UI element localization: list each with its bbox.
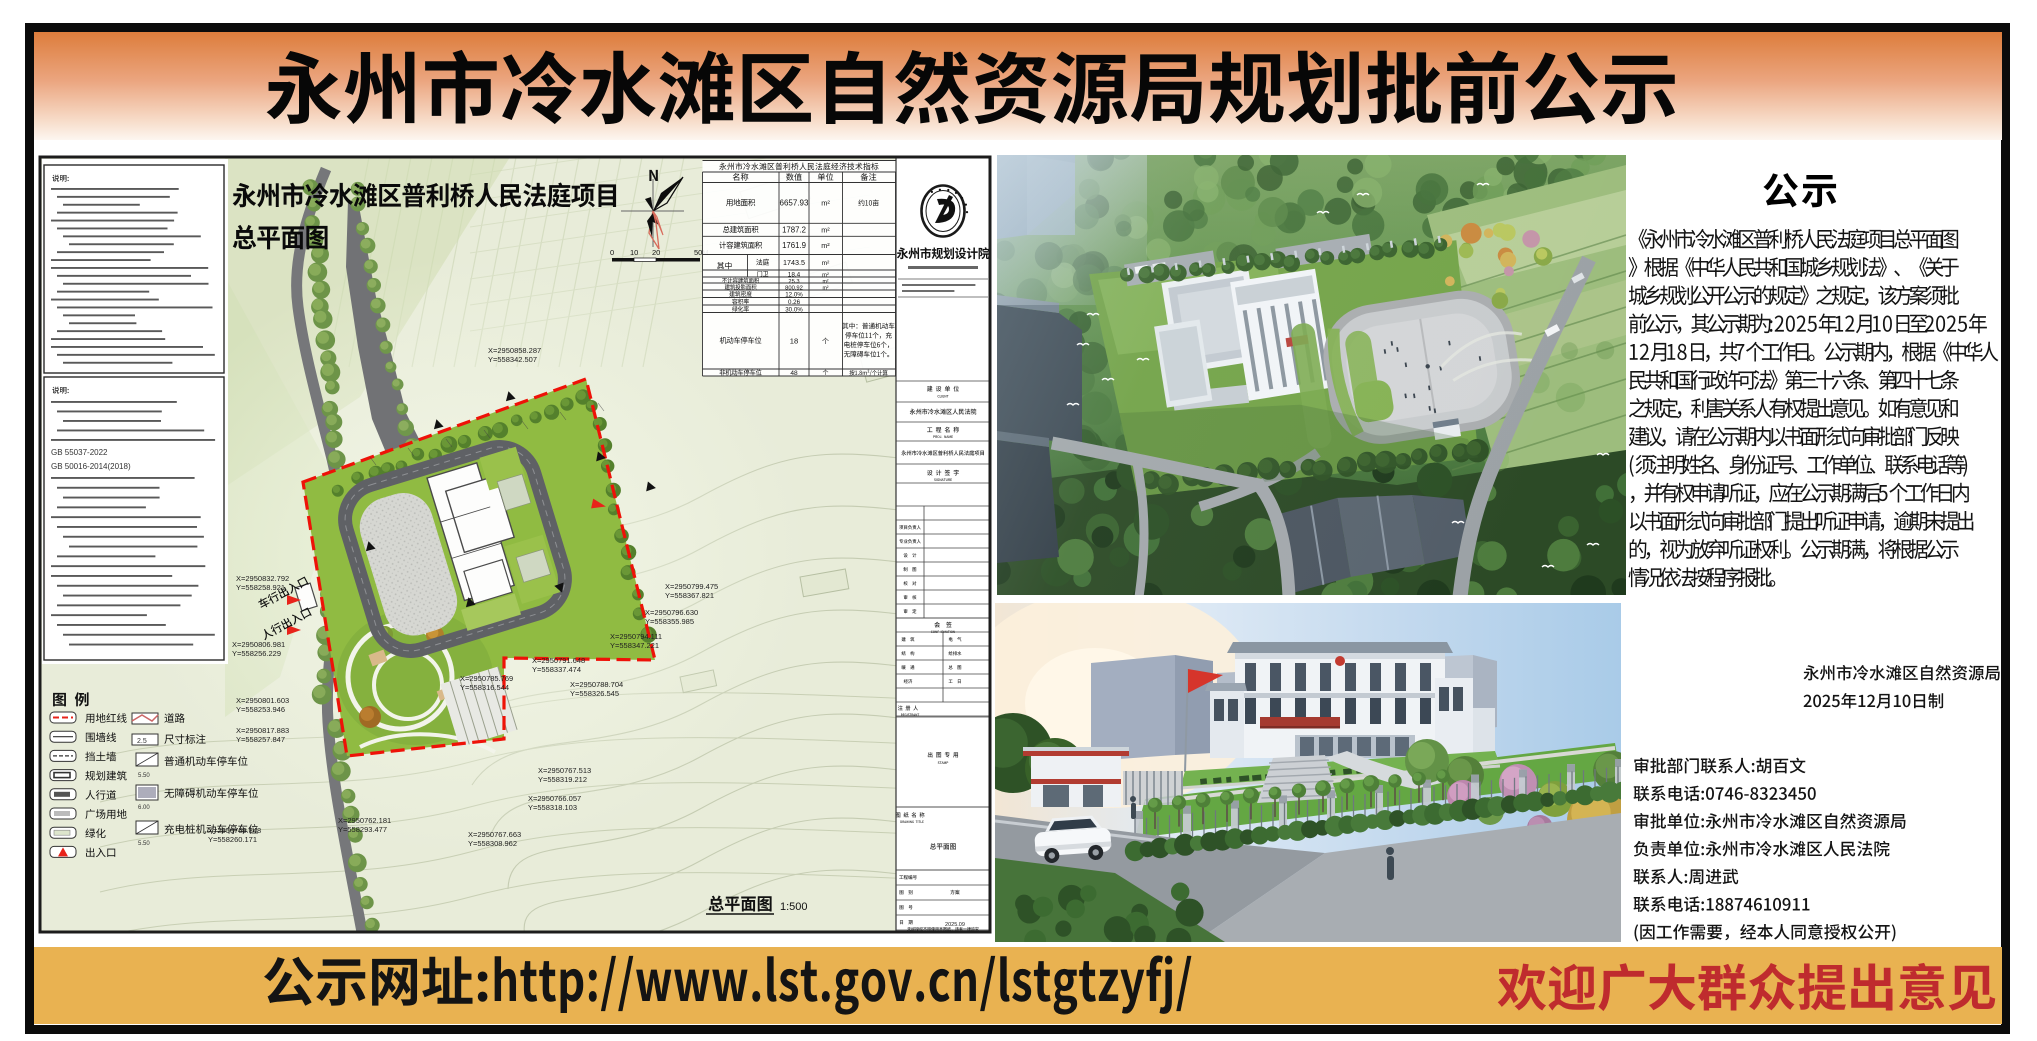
svg-text:0: 0 xyxy=(610,248,614,257)
svg-text:GB 55037-2022: GB 55037-2022 xyxy=(51,448,108,457)
svg-text:20: 20 xyxy=(652,248,660,257)
svg-text:Y=558355.985: Y=558355.985 xyxy=(645,617,694,626)
svg-text:Y=558367.821: Y=558367.821 xyxy=(665,591,714,600)
svg-text:个: 个 xyxy=(822,370,828,377)
svg-text:18: 18 xyxy=(790,336,798,345)
svg-text:Y=558260.171: Y=558260.171 xyxy=(208,835,257,844)
svg-text:800.92: 800.92 xyxy=(785,285,803,291)
svg-text:Y=558316.544: Y=558316.544 xyxy=(460,683,509,692)
svg-text:1743.5: 1743.5 xyxy=(783,258,805,267)
svg-text:X=2950788.704: X=2950788.704 xyxy=(570,680,623,689)
svg-text:0.26: 0.26 xyxy=(788,299,801,306)
svg-text:Y=558326.545: Y=558326.545 xyxy=(570,689,619,698)
svg-text:Y=558318.103: Y=558318.103 xyxy=(528,803,577,812)
svg-text:X=2950801.603: X=2950801.603 xyxy=(236,696,289,705)
svg-text:m²: m² xyxy=(822,285,828,291)
svg-text:X=2950817.883: X=2950817.883 xyxy=(236,726,289,735)
svg-text:X=2950806.981: X=2950806.981 xyxy=(232,640,285,649)
svg-text:Y=558253.946: Y=558253.946 xyxy=(236,705,285,714)
svg-text:Y=558256.229: Y=558256.229 xyxy=(232,649,281,658)
svg-text:48: 48 xyxy=(790,370,798,377)
svg-text:X=2950766.057: X=2950766.057 xyxy=(528,794,581,803)
svg-text:12.0%: 12.0% xyxy=(785,292,803,299)
svg-text:Y=558347.221: Y=558347.221 xyxy=(610,641,659,650)
svg-text:X=2950794.111: X=2950794.111 xyxy=(610,632,662,641)
svg-text:X=2950791.648: X=2950791.648 xyxy=(532,656,585,665)
svg-text:m²: m² xyxy=(821,241,830,250)
svg-text:5.50: 5.50 xyxy=(138,773,150,779)
svg-text:Y=558293.477: Y=558293.477 xyxy=(338,825,387,834)
svg-text:6657.93: 6657.93 xyxy=(780,199,809,208)
svg-text:18.4: 18.4 xyxy=(788,271,801,278)
svg-text:X=2950796.630: X=2950796.630 xyxy=(645,608,698,617)
svg-text:Y=558319.212: Y=558319.212 xyxy=(538,775,587,784)
svg-text:X=2950799.475: X=2950799.475 xyxy=(665,582,718,591)
svg-text:GB 50016-2014(2018): GB 50016-2014(2018) xyxy=(51,462,131,471)
svg-text:5.50: 5.50 xyxy=(138,841,150,847)
svg-text:Y=558308.962: Y=558308.962 xyxy=(468,839,517,848)
svg-text:1:500: 1:500 xyxy=(780,901,808,913)
svg-text:Y=558257.847: Y=558257.847 xyxy=(236,735,285,744)
svg-text:m²: m² xyxy=(822,279,828,285)
svg-text:6.00: 6.00 xyxy=(138,805,150,811)
svg-text:X=2950785.769: X=2950785.769 xyxy=(460,674,513,683)
svg-text:X=2950767.663: X=2950767.663 xyxy=(468,830,521,839)
svg-text:X=2950832.792: X=2950832.792 xyxy=(236,574,289,583)
svg-text:X=2950762.181: X=2950762.181 xyxy=(338,816,391,825)
svg-text:Y=558342.507: Y=558342.507 xyxy=(488,355,537,364)
svg-text:m²: m² xyxy=(822,272,829,278)
svg-text:2.5: 2.5 xyxy=(137,738,147,745)
svg-text:m²: m² xyxy=(822,260,830,267)
svg-text:个: 个 xyxy=(822,337,829,345)
svg-text:X=2950767.513: X=2950767.513 xyxy=(538,766,591,775)
svg-text:m²: m² xyxy=(821,199,830,208)
svg-text:Y=558258.921: Y=558258.921 xyxy=(236,583,285,592)
svg-text:1761.9: 1761.9 xyxy=(782,241,806,250)
svg-text:10: 10 xyxy=(630,248,638,257)
svg-text:30.0%: 30.0% xyxy=(785,307,803,314)
svg-text:25.3: 25.3 xyxy=(788,279,799,285)
svg-text:m²: m² xyxy=(821,226,830,235)
svg-text:X=2950858.287: X=2950858.287 xyxy=(488,346,541,355)
svg-text:Y=558337.474: Y=558337.474 xyxy=(532,665,581,674)
svg-text:1787.2: 1787.2 xyxy=(782,226,806,235)
